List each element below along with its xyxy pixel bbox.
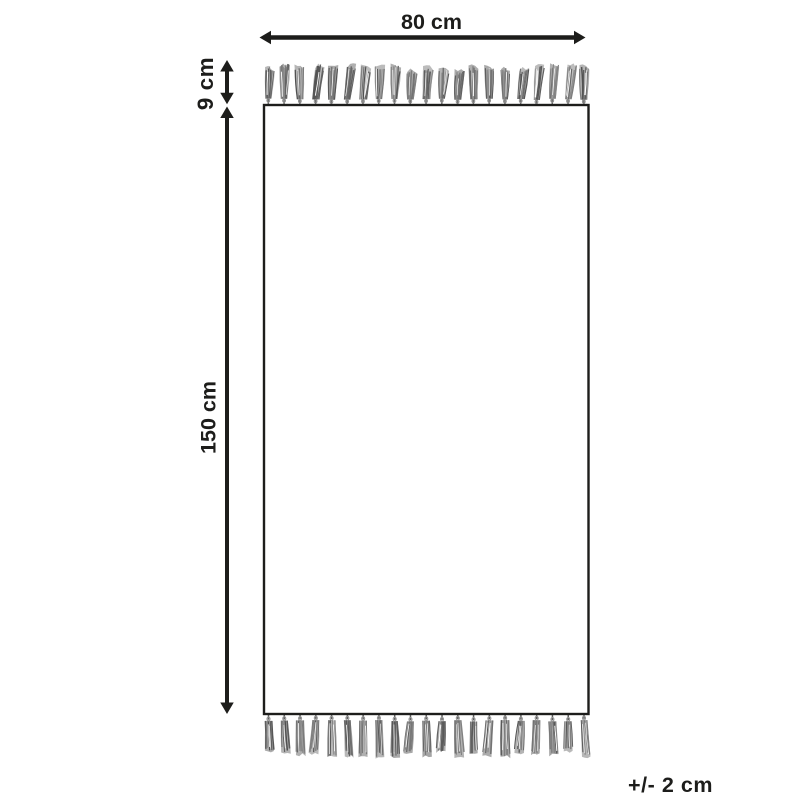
- svg-text:150 cm: 150 cm: [197, 381, 221, 454]
- svg-text:80 cm: 80 cm: [401, 10, 462, 34]
- svg-text:9 cm: 9 cm: [193, 57, 218, 110]
- svg-text:+/- 2 cm: +/- 2 cm: [628, 773, 713, 797]
